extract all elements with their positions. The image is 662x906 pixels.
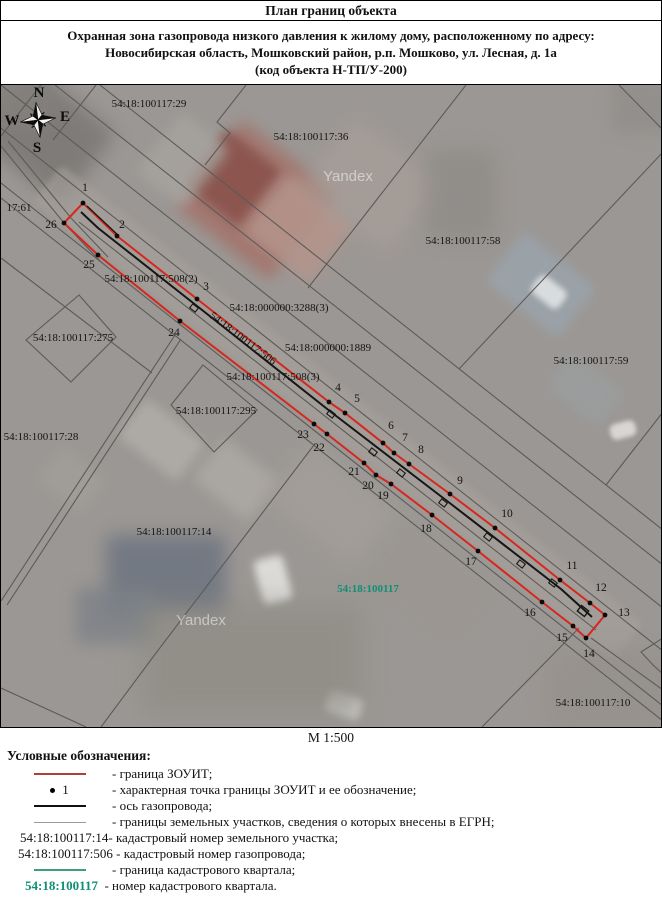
quarter-line-label: - граница кадастрового квартала;	[112, 862, 295, 878]
parcel-boundary-line	[308, 85, 466, 288]
egrn-label: - границы земельных участков, сведения о…	[112, 814, 494, 830]
map-scale: М 1:500	[0, 729, 662, 747]
boundary-point-label-15: 15	[556, 632, 568, 644]
cadastral-number-label: 54:18:100117:59	[554, 355, 629, 367]
quarter-number: 54:18:100117	[25, 878, 98, 894]
cadastral-number-label: 54:18:100117:36	[274, 131, 349, 143]
boundary-point-26	[62, 221, 67, 226]
boundary-point-22	[325, 432, 330, 437]
boundary-point-label-1: 1	[82, 182, 88, 194]
compass-letter: S	[33, 140, 41, 156]
legend-row-axis: - ось газопровода;	[7, 798, 662, 814]
egrn-line-swatch	[7, 822, 112, 823]
cadastral-number-label: 54:18:100117:295	[176, 405, 257, 417]
boundary-point-4	[327, 400, 332, 405]
scale-label: М 1:500	[308, 730, 354, 746]
pipe-number-desc: кадастровый номер газопровода;	[124, 846, 306, 862]
cadastral-number-label: 54:18:000000:1889	[285, 342, 372, 354]
parcel-boundary-line	[1, 335, 175, 601]
cadastral-number-label: 54:18:100117:58	[426, 235, 501, 247]
legend-row-quarter-number: 54:18:100117 - номер кадастрового кварта…	[7, 878, 662, 894]
parcel-boundary-line	[641, 638, 662, 674]
cadastral-number-label: 54:18:000000:3288(3)	[230, 302, 329, 314]
pipeline-end-marker-icon	[577, 605, 588, 616]
boundary-point-label-5: 5	[354, 393, 360, 405]
boundary-point-label-13: 13	[618, 607, 630, 619]
boundary-point-12	[588, 601, 593, 606]
boundary-point-23	[312, 422, 317, 427]
boundary-point-label-7: 7	[402, 432, 408, 444]
boundary-point-label-18: 18	[420, 523, 432, 535]
boundary-point-label-2: 2	[119, 219, 125, 231]
boundary-point-label-4: 4	[335, 382, 341, 394]
pipe-number: 54:18:100117:506 -	[18, 846, 120, 862]
point-dot-icon	[50, 788, 55, 793]
boundary-point-label-19: 19	[377, 490, 389, 502]
compass-letter: E	[60, 109, 70, 125]
parcel-boundary-line	[8, 141, 108, 257]
subtitle-line-2: Новосибирская область, Мошковский район,…	[105, 44, 557, 61]
satellite-map: 1234567891011121314151617181920212223242…	[0, 85, 662, 728]
boundary-point-label-26: 26	[45, 219, 57, 231]
boundary-point-label-6: 6	[388, 420, 394, 432]
cadastral-number-label: 17:61	[6, 202, 31, 214]
boundary-point-13	[603, 613, 608, 618]
cadastral-number-label: 54:18:100117:14	[137, 526, 212, 538]
yandex-watermark: Yandex	[176, 612, 226, 629]
parcel-boundary-line	[100, 85, 662, 530]
legend-row-parcel-number: 54:18:100117:14- кадастровый номер земел…	[7, 830, 662, 846]
legend-row-egrn: - границы земельных участков, сведения о…	[7, 814, 662, 830]
boundary-point-label-10: 10	[501, 508, 513, 520]
parcel-boundary-line	[619, 85, 662, 130]
boundary-point-11	[558, 578, 563, 583]
boundary-point-label-8: 8	[418, 444, 424, 456]
parcel-boundary-line	[205, 85, 246, 165]
pipeline-marker-icon	[397, 469, 406, 477]
cadastral-number-label: 54:18:100117:28	[4, 431, 79, 443]
boundary-point-5	[343, 411, 348, 416]
point-symbol-label: 1	[62, 782, 69, 798]
boundary-point-3	[195, 297, 200, 302]
quarter-line-swatch	[7, 869, 112, 871]
quarter-number-desc: - номер кадастрового квартала.	[104, 878, 276, 894]
boundary-point-label-12: 12	[595, 582, 607, 594]
boundary-point-2	[115, 234, 120, 239]
boundary-point-21	[362, 461, 367, 466]
document-title-box: План границ объекта	[0, 0, 662, 21]
compass-letter: N	[34, 85, 45, 101]
boundary-point-15	[571, 624, 576, 629]
document-subtitle-box: Охранная зона газопровода низкого давлен…	[0, 21, 662, 85]
boundary-point-10	[493, 526, 498, 531]
boundary-point-label-21: 21	[348, 466, 360, 478]
legend-row-pipe-number: 54:18:100117:506 - кадастровый номер газ…	[7, 846, 662, 862]
boundary-point-18	[430, 513, 435, 518]
subtitle-line-3: (код объекта Н-ТП/У-200)	[255, 61, 407, 78]
zouit-line-swatch	[7, 773, 112, 775]
boundary-point-9	[448, 492, 453, 497]
boundary-point-label-25: 25	[83, 259, 95, 271]
boundary-point-17	[476, 549, 481, 554]
legend-row-quarter-line: - граница кадастрового квартала;	[7, 862, 662, 878]
legend-heading: Условные обозначения:	[7, 748, 662, 764]
boundary-point-label-9: 9	[457, 475, 463, 487]
subtitle-line-1: Охранная зона газопровода низкого давлен…	[67, 27, 595, 44]
parcel-boundary-line	[55, 85, 662, 565]
plan-document: План границ объекта Охранная зона газопр…	[0, 0, 662, 906]
boundary-point-14	[584, 636, 589, 641]
legend-row-zouit: - граница ЗОУИТ;	[7, 766, 662, 782]
boundary-point-label-3: 3	[203, 281, 209, 293]
zouit-label: - граница ЗОУИТ;	[112, 766, 212, 782]
boundary-point-label-20: 20	[362, 480, 374, 492]
boundary-point-label-24: 24	[168, 327, 180, 339]
yandex-watermark: Yandex	[323, 168, 373, 185]
boundary-point-6	[381, 441, 386, 446]
parcel-boundary-line	[7, 339, 181, 605]
boundary-point-1	[81, 201, 86, 206]
point-label: - характерная точка границы ЗОУИТ и ее о…	[112, 782, 416, 798]
axis-label: - ось газопровода;	[112, 798, 212, 814]
boundary-point-label-17: 17	[465, 556, 477, 568]
legend-row-point: 1 - характерная точка границы ЗОУИТ и ее…	[7, 782, 662, 798]
point-swatch: 1	[7, 782, 112, 798]
cadastral-number-label: 54:18:100117:275	[33, 332, 114, 344]
boundary-point-8	[407, 462, 412, 467]
boundary-point-7	[392, 451, 397, 456]
boundary-point-16	[540, 600, 545, 605]
boundary-point-24	[178, 319, 183, 324]
boundary-point-25	[96, 253, 101, 258]
boundary-point-20	[374, 473, 379, 478]
parcel-number: 54:18:100117:14-	[20, 830, 113, 846]
boundary-point-label-23: 23	[297, 429, 309, 441]
boundary-point-label-22: 22	[313, 442, 325, 454]
parcel-boundary-line	[101, 445, 314, 727]
compass-letter: W	[5, 113, 20, 129]
page-title: План границ объекта	[265, 3, 396, 19]
axis-line-swatch	[7, 805, 112, 807]
legend: Условные обозначения: - граница ЗОУИТ; 1…	[0, 748, 662, 894]
boundary-point-19	[389, 482, 394, 487]
map-overlay: 1234567891011121314151617181920212223242…	[1, 85, 662, 728]
parcel-boundary-line	[1, 688, 86, 727]
parcel-boundary-line	[606, 412, 662, 485]
quarter-number-label: 54:18:100117	[337, 583, 399, 595]
cadastral-number-label: 54:18:100117:508(3)	[226, 371, 319, 383]
cadastral-number-label: 54:18:100117:508(2)	[104, 273, 197, 285]
boundary-point-label-11: 11	[566, 560, 577, 572]
parcel-number-desc: кадастровый номер земельного участка;	[116, 830, 338, 846]
parcel-boundary-line	[1, 128, 662, 651]
boundary-point-label-16: 16	[524, 607, 536, 619]
parcel-boundary-line	[459, 152, 662, 369]
cadastral-number-label: 54:18:100117:29	[112, 98, 187, 110]
cadastral-number-label: 54:18:100117:10	[556, 697, 631, 709]
boundary-point-label-14: 14	[583, 648, 595, 660]
